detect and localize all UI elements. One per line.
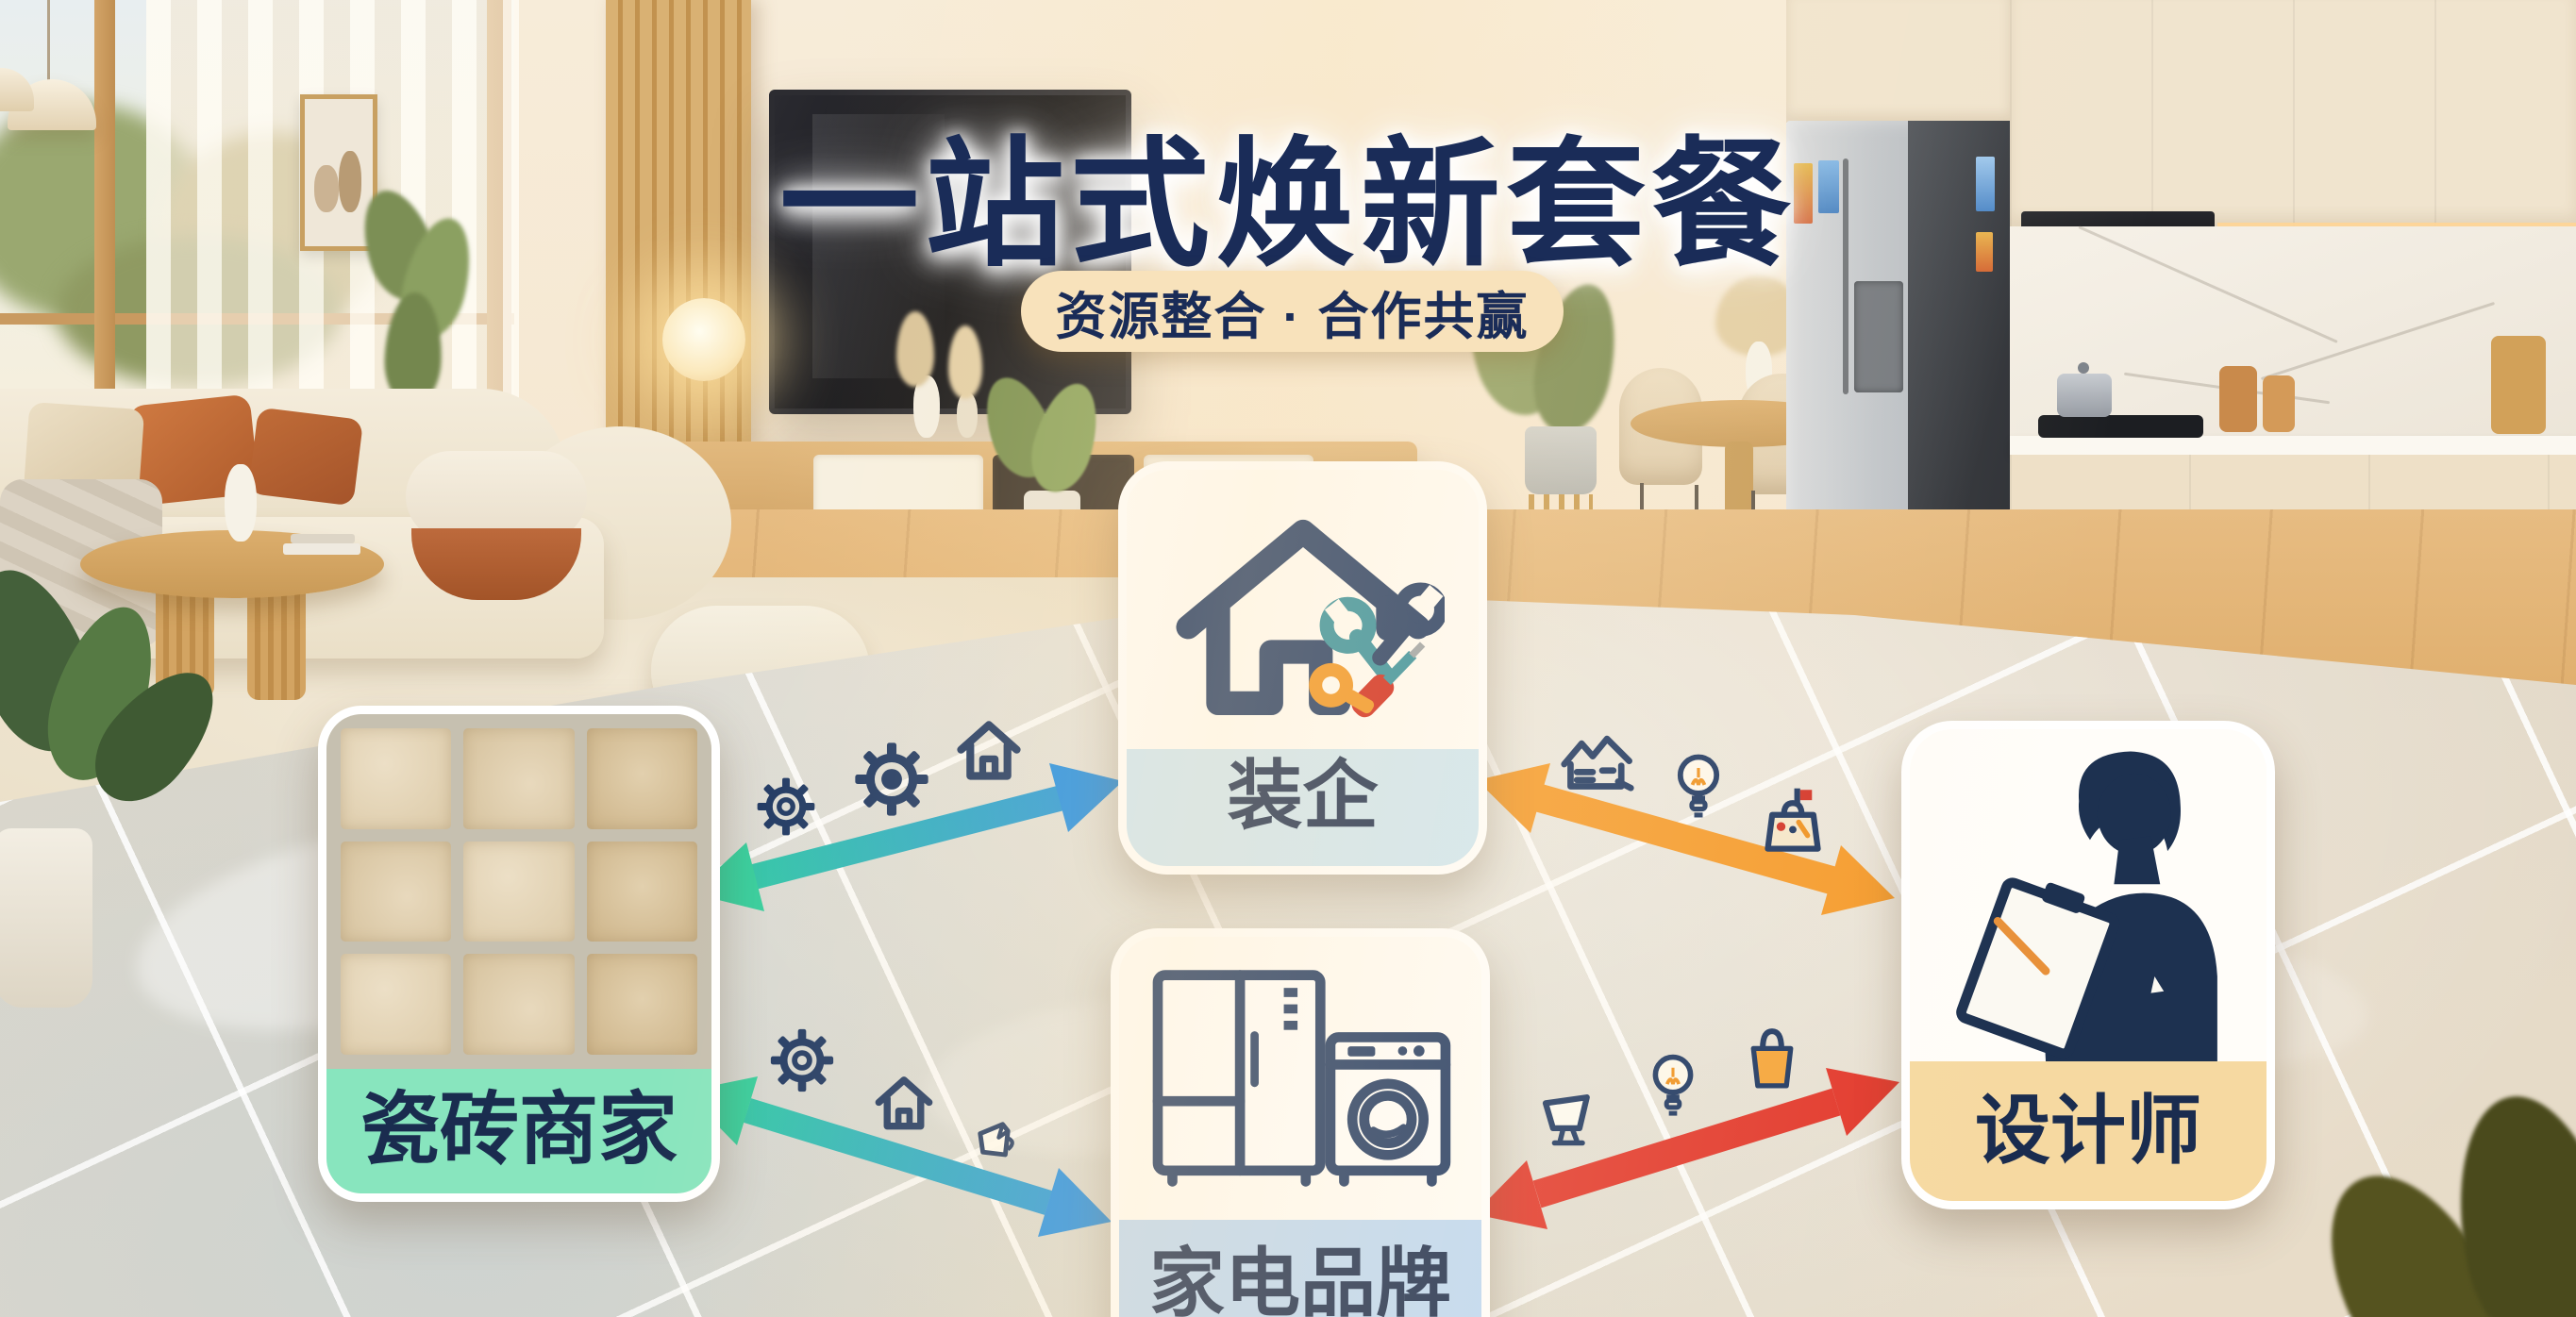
house-sketch-icon: [1558, 725, 1637, 804]
tile-swatch: [463, 842, 574, 942]
subtitle-pill: 资源整合 · 合作共赢: [1021, 271, 1564, 352]
house-icon: [950, 709, 1028, 787]
node-card-appliance-brand: 家电品牌: [1111, 928, 1490, 1317]
card-label-strip: 瓷砖商家: [326, 1069, 711, 1193]
poster-canvas: 一站式焕新套餐 资源整合 · 合作共赢: [0, 0, 2576, 1317]
node-card-decor-company: 装企: [1118, 461, 1487, 875]
tile-swatch: [463, 728, 574, 829]
tile-swatch: [341, 954, 451, 1055]
tile-swatch: [341, 728, 451, 829]
tile-sample: [326, 714, 711, 1069]
house-icon: [869, 1066, 939, 1136]
tile-swatch: [587, 842, 697, 942]
subtitle-text: 资源整合 · 合作共赢: [1056, 275, 1530, 349]
house-repair-icon: [1127, 470, 1479, 749]
gear-icon: [755, 775, 817, 838]
lightbulb-icon: [1644, 1049, 1702, 1130]
node-card-tile-merchant: 瓷砖商家: [318, 706, 720, 1202]
tile-swatch: [587, 728, 697, 829]
toolbag-icon: [1756, 784, 1830, 858]
tile-swatch: [463, 954, 574, 1055]
designer-silhouette-icon: [1910, 729, 2267, 1061]
flyer-icon: [964, 1109, 1030, 1175]
tile-swatch: [587, 954, 697, 1055]
gear-icon: [768, 1026, 836, 1094]
tile-grid: [326, 714, 711, 1069]
card-label-strip: 家电品牌: [1119, 1220, 1481, 1317]
card-label-strip: 设计师: [1910, 1061, 2267, 1201]
node-card-designer: 设计师: [1901, 721, 2275, 1209]
node-label: 家电品牌: [1149, 1220, 1451, 1317]
page-title: 一站式焕新套餐: [0, 91, 2576, 293]
node-label: 装企: [1228, 749, 1379, 834]
node-label: 瓷砖商家: [360, 1069, 677, 1169]
gear-icon: [852, 740, 931, 819]
lightbulb-icon: [1668, 749, 1729, 832]
node-label: 设计师: [1975, 1061, 2201, 1169]
fridge-washer-icon: [1119, 937, 1481, 1220]
tile-swatch: [341, 842, 451, 942]
cart-icon: [1532, 1081, 1606, 1155]
shopping-bag-icon: [1736, 1023, 1808, 1094]
card-label-strip: 装企: [1127, 749, 1479, 866]
